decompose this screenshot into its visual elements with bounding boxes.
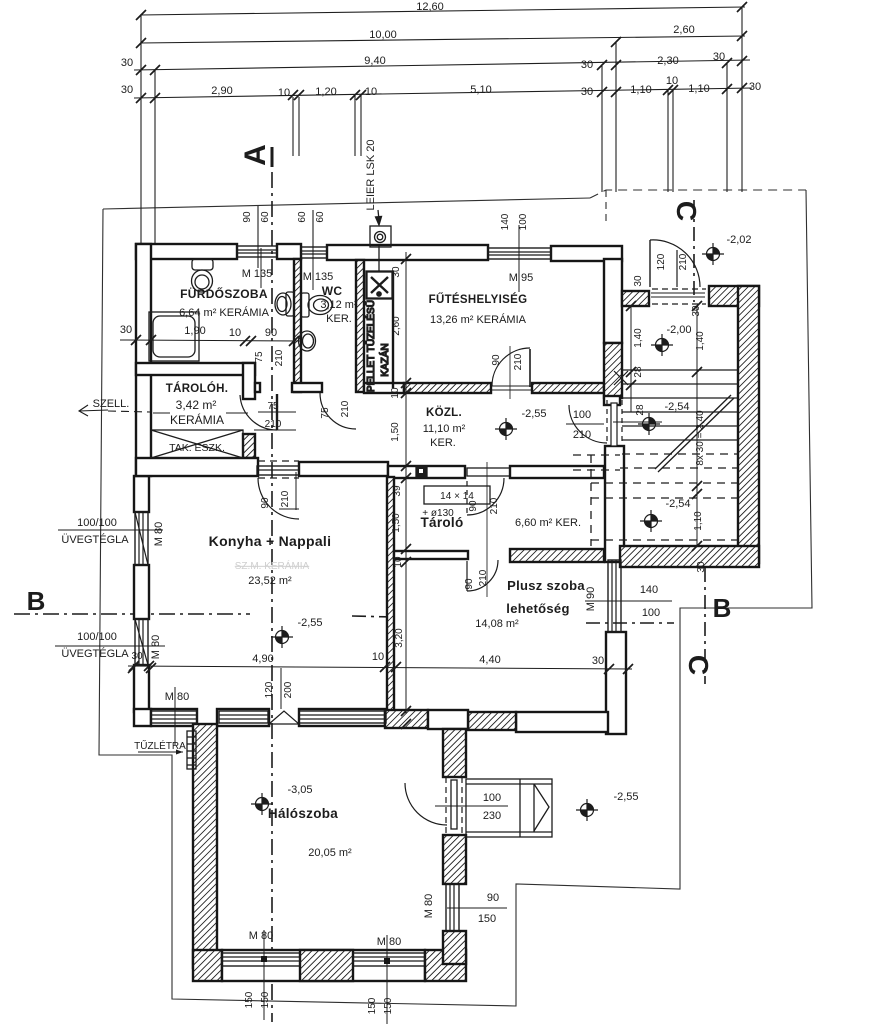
svg-text:90: 90 (265, 327, 277, 339)
svg-text:12,60: 12,60 (416, 1, 444, 13)
svg-text:B: B (27, 586, 46, 616)
svg-text:210: 210 (573, 429, 591, 441)
svg-text:11,10 m²: 11,10 m² (423, 423, 466, 435)
svg-text:M 80: M 80 (150, 635, 162, 659)
svg-text:30: 30 (391, 266, 402, 278)
svg-text:39: 39 (392, 485, 403, 497)
svg-text:23,52 m²: 23,52 m² (248, 575, 292, 587)
svg-text:6,60 m² KER.: 6,60 m² KER. (515, 517, 581, 529)
svg-text:100: 100 (483, 792, 501, 804)
svg-text:90: 90 (242, 211, 253, 223)
svg-text:150: 150 (383, 997, 394, 1014)
svg-text:30: 30 (581, 86, 593, 98)
svg-text:1,50: 1,50 (390, 422, 401, 442)
svg-text:210: 210 (340, 400, 351, 417)
svg-text:210: 210 (678, 253, 689, 270)
svg-text:10: 10 (278, 87, 290, 99)
svg-text:2,60: 2,60 (673, 24, 694, 36)
svg-text:230: 230 (483, 810, 501, 822)
svg-text:210: 210 (265, 419, 282, 430)
svg-text:30: 30 (121, 84, 133, 96)
svg-text:SZ.M. KERÁMIA: SZ.M. KERÁMIA (235, 559, 310, 572)
svg-text:30: 30 (121, 57, 133, 69)
svg-text:90: 90 (487, 892, 499, 904)
svg-text:M 135: M 135 (242, 268, 273, 280)
svg-text:M 95: M 95 (509, 272, 533, 284)
svg-text:KAZÁN: KAZÁN (378, 343, 391, 376)
svg-text:M 80: M 80 (423, 894, 435, 918)
svg-text:-2,02: -2,02 (726, 234, 751, 246)
svg-text:8x 30 = 2,40: 8x 30 = 2,40 (695, 410, 706, 466)
svg-text:140: 140 (640, 584, 658, 596)
svg-text:-2,00: -2,00 (666, 324, 691, 336)
svg-text:+ ø130: + ø130 (422, 508, 454, 519)
svg-text:M 80: M 80 (165, 691, 189, 703)
svg-text:ÜVEGTÉGLA: ÜVEGTÉGLA (61, 533, 129, 546)
svg-text:SZELL.: SZELL. (93, 398, 130, 410)
svg-text:210: 210 (489, 497, 500, 514)
svg-text:10: 10 (372, 651, 384, 663)
svg-text:A: A (239, 144, 272, 166)
svg-text:30: 30 (713, 51, 725, 63)
svg-text:90: 90 (260, 497, 271, 509)
svg-text:WC: WC (322, 284, 343, 298)
svg-text:90: 90 (491, 354, 502, 366)
svg-text:B: B (713, 593, 732, 623)
svg-text:30: 30 (749, 81, 761, 93)
svg-text:100/100: 100/100 (77, 517, 117, 529)
svg-text:1,50: 1,50 (391, 513, 402, 533)
svg-text:13,26 m² KERÁMIA: 13,26 m² KERÁMIA (430, 313, 527, 326)
svg-text:-3,05: -3,05 (287, 784, 312, 796)
svg-text:C: C (683, 655, 714, 675)
svg-text:TÁROLÓH.: TÁROLÓH. (166, 382, 228, 395)
svg-text:M 80: M 80 (249, 930, 273, 942)
svg-text:Konyha + Nappali: Konyha + Nappali (209, 533, 332, 549)
svg-text:75: 75 (267, 401, 279, 412)
svg-text:3,42 m²: 3,42 m² (176, 398, 217, 412)
svg-text:10: 10 (229, 327, 241, 339)
svg-text:210: 210 (478, 569, 489, 586)
svg-text:100: 100 (518, 213, 529, 230)
svg-text:75: 75 (254, 351, 265, 363)
svg-text:100/100: 100/100 (77, 631, 117, 643)
svg-text:TŰZLÉTRA: TŰZLÉTRA (134, 738, 186, 752)
svg-text:20,05 m²: 20,05 m² (308, 847, 352, 859)
svg-text:M 80: M 80 (377, 936, 401, 948)
svg-text:210: 210 (280, 490, 291, 507)
svg-text:1,10: 1,10 (688, 83, 709, 95)
svg-text:LEIER LSK 20: LEIER LSK 20 (365, 140, 377, 211)
svg-text:1,90: 1,90 (184, 325, 205, 337)
svg-text:14,08 m²: 14,08 m² (475, 618, 519, 630)
svg-text:M 80: M 80 (153, 522, 165, 546)
svg-text:30: 30 (581, 59, 593, 71)
svg-text:10: 10 (390, 387, 401, 399)
svg-text:10: 10 (666, 75, 678, 87)
svg-text:5,10: 5,10 (470, 84, 491, 96)
svg-text:1,20: 1,20 (315, 86, 336, 98)
svg-text:KER.: KER. (430, 437, 456, 449)
svg-text:30: 30 (633, 275, 644, 287)
svg-text:210: 210 (274, 349, 285, 366)
svg-text:2,90: 2,90 (211, 85, 232, 97)
svg-text:-2,54: -2,54 (664, 401, 689, 413)
svg-text:1,10: 1,10 (630, 84, 651, 96)
svg-text:28: 28 (635, 404, 646, 416)
svg-text:100: 100 (573, 409, 591, 421)
svg-text:6,64 m² KERÁMIA: 6,64 m² KERÁMIA (179, 306, 270, 319)
svg-text:4,40: 4,40 (479, 654, 500, 666)
svg-text:30: 30 (131, 651, 143, 662)
svg-text:210: 210 (513, 353, 524, 370)
svg-text:-2,55: -2,55 (297, 617, 322, 629)
svg-text:200: 200 (283, 681, 294, 698)
svg-text:3,12 m²: 3,12 m² (320, 299, 358, 311)
svg-text:KER.: KER. (326, 313, 352, 325)
svg-text:Plusz szoba: Plusz szoba (507, 578, 585, 593)
svg-text:10: 10 (393, 556, 404, 568)
svg-text:PELLET TÜZELÉSŰ: PELLET TÜZELÉSŰ (363, 300, 377, 392)
svg-text:120: 120 (656, 253, 667, 270)
svg-text:2,30: 2,30 (657, 55, 678, 67)
svg-text:M 135: M 135 (303, 271, 334, 283)
svg-text:-2,55: -2,55 (521, 408, 546, 420)
svg-text:-2,55: -2,55 (613, 791, 638, 803)
svg-text:TAK. ESZK.: TAK. ESZK. (169, 442, 225, 454)
svg-text:30: 30 (696, 561, 707, 573)
svg-text:14 × 14: 14 × 14 (440, 491, 474, 502)
svg-text:150: 150 (478, 913, 496, 925)
svg-text:Hálószoba: Hálószoba (268, 806, 338, 821)
svg-text:100: 100 (642, 607, 660, 619)
svg-text:10: 10 (365, 86, 377, 98)
svg-text:90: 90 (464, 578, 475, 590)
svg-text:1,40: 1,40 (695, 331, 706, 351)
svg-text:150: 150 (244, 991, 255, 1008)
svg-text:60: 60 (315, 211, 326, 223)
svg-text:10,00: 10,00 (369, 29, 397, 41)
svg-text:150: 150 (260, 991, 271, 1008)
svg-text:FŰTÉSHELYISÉG: FŰTÉSHELYISÉG (429, 293, 528, 306)
svg-text:lehetőség: lehetőség (506, 601, 569, 616)
svg-text:120: 120 (264, 681, 275, 698)
svg-text:150: 150 (367, 997, 378, 1014)
svg-text:9,40: 9,40 (364, 55, 385, 67)
svg-text:30: 30 (120, 324, 132, 336)
svg-text:KERÁMIA: KERÁMIA (170, 412, 224, 427)
svg-text:3,20: 3,20 (394, 628, 405, 648)
svg-text:1,10: 1,10 (693, 511, 704, 531)
svg-text:2,60: 2,60 (391, 316, 402, 336)
svg-text:M 90: M 90 (585, 587, 597, 611)
svg-text:28: 28 (633, 366, 644, 378)
svg-text:60: 60 (260, 211, 271, 223)
svg-text:ÜVEGTÉGLA: ÜVEGTÉGLA (61, 647, 129, 660)
svg-text:1,40: 1,40 (633, 328, 644, 348)
svg-text:C: C (671, 201, 702, 221)
svg-text:FÜRDŐSZOBA: FÜRDŐSZOBA (180, 286, 268, 301)
svg-text:140: 140 (500, 213, 511, 230)
svg-text:30: 30 (592, 655, 604, 667)
svg-text:-2,54: -2,54 (665, 498, 690, 510)
svg-text:4,90: 4,90 (252, 653, 273, 665)
svg-text:30: 30 (691, 305, 702, 317)
svg-text:KÖZL.: KÖZL. (426, 406, 462, 419)
svg-text:60: 60 (297, 211, 308, 223)
svg-text:75: 75 (320, 407, 331, 419)
